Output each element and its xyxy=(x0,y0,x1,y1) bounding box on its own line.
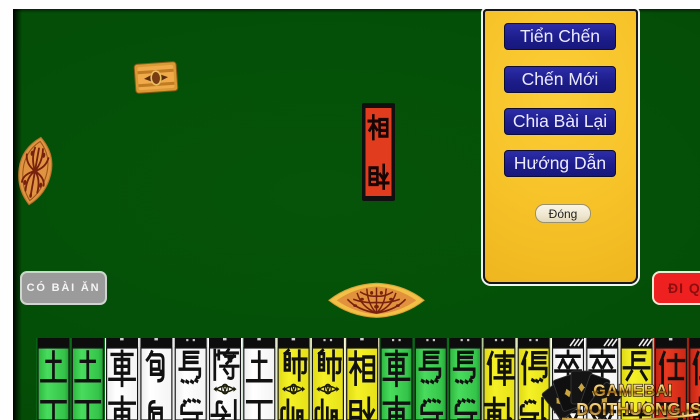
svg-text:GAMEBAI: GAMEBAI xyxy=(593,382,673,400)
